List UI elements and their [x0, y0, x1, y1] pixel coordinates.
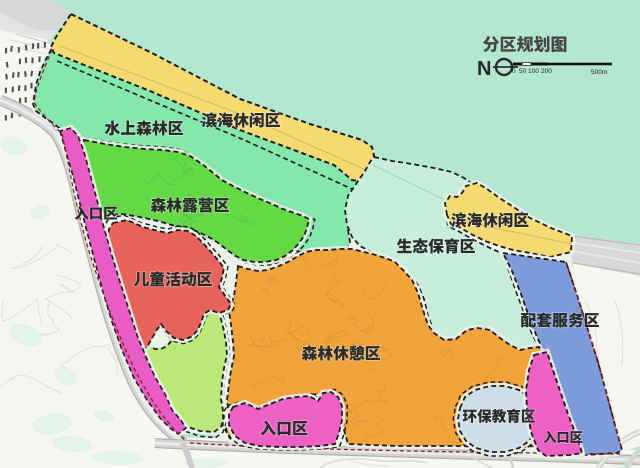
- svg-text:N: N: [477, 58, 491, 80]
- svg-text:200: 200: [541, 68, 552, 75]
- svg-text:100: 100: [528, 68, 539, 75]
- svg-text:0: 0: [512, 68, 516, 75]
- svg-text:50: 50: [519, 68, 527, 75]
- svg-text:500m: 500m: [591, 69, 607, 76]
